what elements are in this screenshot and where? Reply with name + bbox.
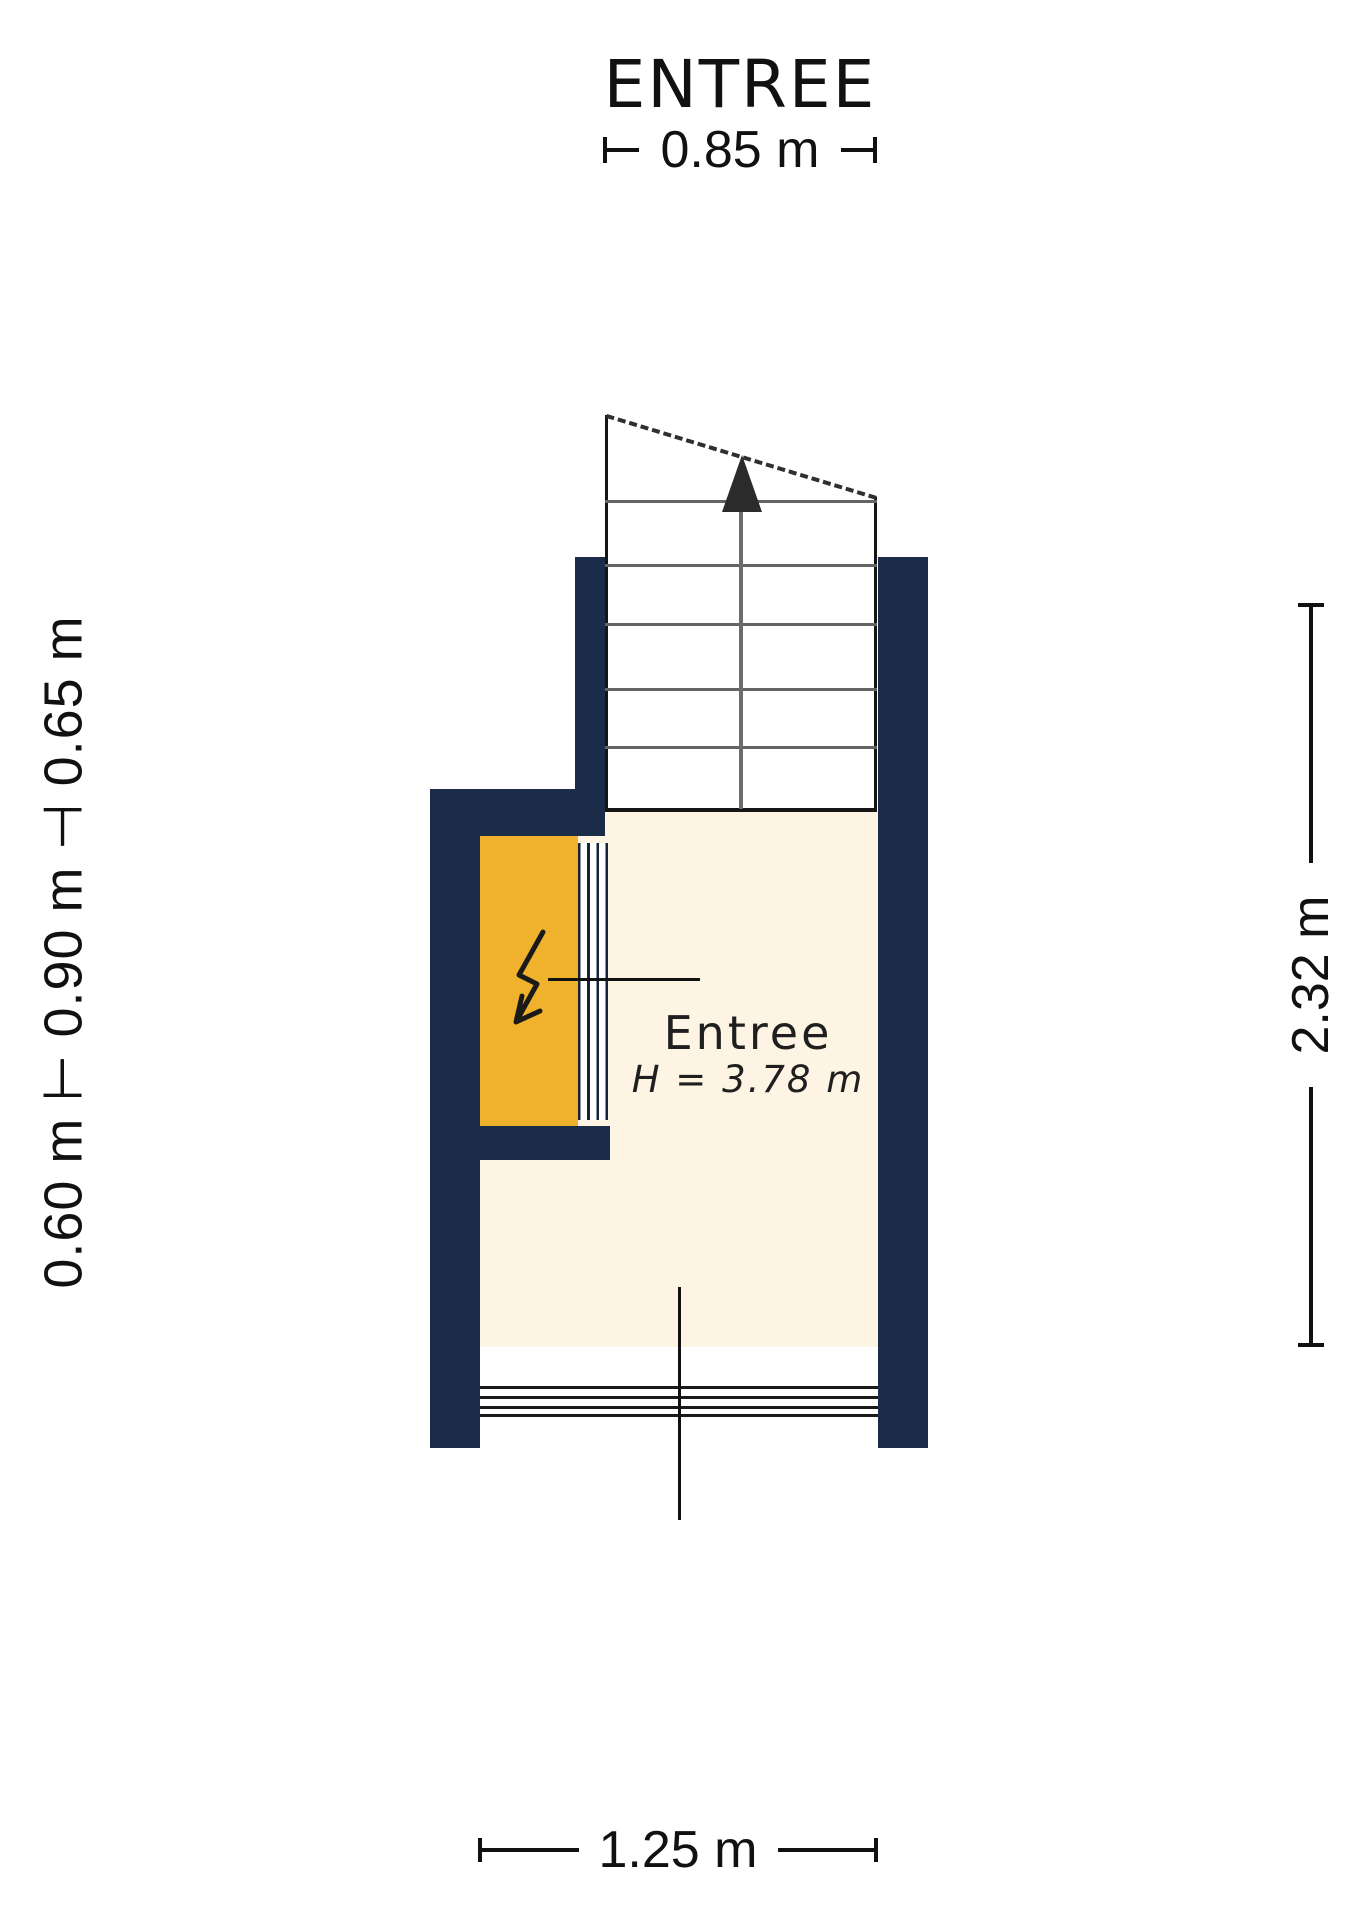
page-title: ENTREE (604, 46, 877, 123)
staircase-direction-line (739, 505, 743, 809)
staircase-left-edge (605, 415, 608, 812)
room-name-label: Entree (664, 1006, 833, 1060)
room-height-label: H = 3.78 m (632, 1058, 865, 1101)
meter-cabinet-door (578, 843, 608, 1120)
dimension-tick-left-icon (603, 148, 639, 152)
dimension-bottom: 1.25 m (478, 1822, 878, 1878)
dimension-right-label: 2.32 m (1281, 896, 1341, 1055)
ruler-tick-bottom-icon (1298, 1343, 1324, 1347)
lightning-bolt-icon (492, 920, 552, 1035)
wall-left (430, 789, 480, 1448)
wall-upper-left (575, 557, 605, 789)
wall-meter-niche-top (430, 789, 605, 836)
ruler-line-lower (1309, 1087, 1313, 1345)
dimension-line-left (478, 1848, 579, 1852)
dimension-line-right (778, 1848, 879, 1852)
staircase-right-edge (874, 497, 877, 812)
dimension-bottom-label: 1.25 m (599, 1820, 758, 1880)
dimension-top-label: 0.85 m (661, 120, 820, 180)
wall-right (878, 557, 928, 1448)
dimension-top: 0.85 m (603, 122, 877, 178)
stairs-up-arrow-icon (722, 455, 762, 512)
dimension-left-label: 0.60 m ⊢ 0.90 m ⊣ 0.65 m (32, 615, 95, 1288)
dimension-tick-right-icon (841, 148, 877, 152)
door-center-line (678, 1287, 681, 1520)
ruler-line-upper (1309, 607, 1313, 863)
meter-reference-line (548, 978, 700, 981)
wall-meter-niche-bottom (430, 1126, 610, 1160)
